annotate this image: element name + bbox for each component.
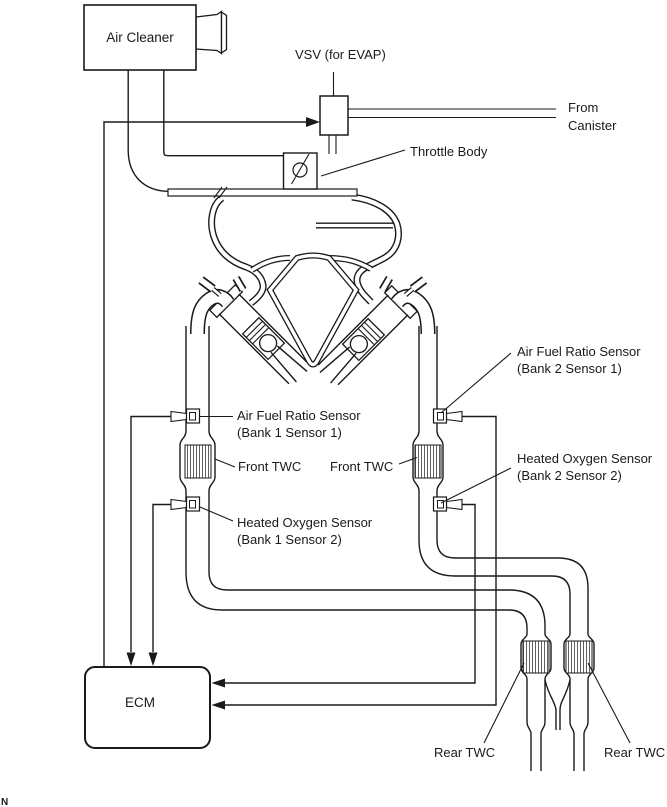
afr-b1-label-line1: Air Fuel Ratio Sensor (237, 408, 361, 423)
engine-diagram: Air Cleaner ECM VSV (for (0, 0, 667, 807)
rear-pipe-merge (545, 680, 570, 730)
throttle-flange (168, 187, 357, 198)
vsv-label: VSV (for EVAP) (295, 47, 386, 62)
afr-b1s1-wire (127, 417, 172, 667)
front-twc-left-converter (185, 445, 211, 478)
vsv-valve (320, 96, 348, 135)
rear-twc-right-label: Rear TWC (604, 745, 665, 760)
canister-pipe (348, 109, 556, 118)
afr-b1-label-line2: (Bank 1 Sensor 1) (237, 425, 342, 440)
intake-duct (146, 66, 292, 174)
rear-twc-left-converter (523, 641, 549, 673)
front-twc-right-label: Front TWC (330, 459, 393, 474)
front-twc-left-label: Front TWC (238, 459, 301, 474)
corner-mark: N (1, 797, 8, 807)
front-twc-right-converter (415, 445, 441, 478)
throttle-body (284, 153, 318, 189)
ho2s-b1-label-line2: (Bank 1 Sensor 2) (237, 532, 342, 547)
throttle-body-label: Throttle Body (410, 144, 488, 159)
air-cleaner-label: Air Cleaner (106, 30, 174, 45)
from-canister-label-line1: From (568, 100, 598, 115)
air-cleaner: Air Cleaner (84, 5, 227, 70)
afr-b2s1-sensor (434, 409, 463, 423)
rear-twc-right-converter (566, 641, 592, 673)
ho2s-b2-label-line2: (Bank 2 Sensor 2) (517, 468, 622, 483)
ecm: ECM (85, 667, 210, 748)
ho2s-b1s2-wire (149, 505, 172, 667)
ecm-label: ECM (125, 695, 155, 710)
rear-twc-left-label: Rear TWC (434, 745, 495, 760)
ho2s-b1-label-line1: Heated Oxygen Sensor (237, 515, 373, 530)
ho2s-b1s2-sensor (171, 497, 200, 511)
afr-b1s1-sensor (171, 409, 200, 423)
afr-b2-label-line2: (Bank 2 Sensor 1) (517, 361, 622, 376)
ho2s-b2-label-line1: Heated Oxygen Sensor (517, 451, 653, 466)
intake-plenum (270, 256, 356, 365)
from-canister-label-line2: Canister (568, 118, 617, 133)
afr-b2-label-line1: Air Fuel Ratio Sensor (517, 344, 641, 359)
engine-diagram-page: Air Cleaner ECM VSV (for (0, 0, 667, 807)
